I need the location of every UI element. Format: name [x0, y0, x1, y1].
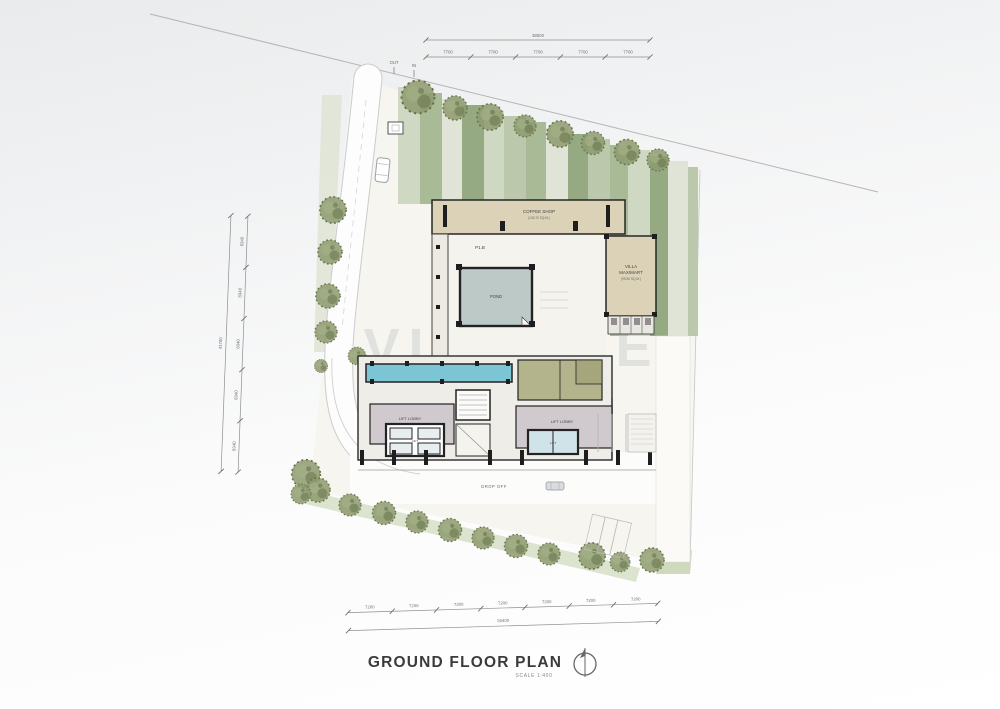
- dim-top-seg: 7700: [533, 50, 543, 55]
- lift-west-label: LIFT: [412, 439, 418, 443]
- tree-icon: [504, 534, 527, 557]
- column: [436, 275, 440, 279]
- tree-icon: [316, 284, 340, 308]
- column: [436, 305, 440, 309]
- column: [652, 234, 657, 239]
- dim-left-seg: 8340: [239, 236, 244, 246]
- door-mark: [573, 221, 578, 231]
- tree-icon: [538, 543, 560, 565]
- dimension-bottom: 7200 7200 7200 7200 7200 7200 7200 50400: [345, 596, 661, 633]
- p1b-label: P1.B: [475, 245, 485, 250]
- dim-bottom-seg: 7200: [498, 600, 508, 605]
- dim-left-seg: 8340: [237, 287, 242, 297]
- toilet-block: [608, 316, 654, 334]
- dim-top-seg: 7700: [578, 50, 588, 55]
- entry-out-label: OUT: [390, 60, 399, 65]
- dim-left-seg: 8340: [231, 441, 236, 451]
- lift-lobby-east-label: LIFT LOBBY: [551, 419, 574, 424]
- tree-icon: [547, 121, 573, 147]
- tree-icon: [291, 484, 311, 504]
- tree-icon: [314, 359, 327, 372]
- dim-top-seg: 7700: [623, 50, 633, 55]
- tree-icon: [318, 240, 342, 264]
- amenity-room-small: [576, 360, 602, 384]
- dim-top-seg: 7700: [443, 50, 453, 55]
- column: [529, 321, 535, 327]
- tree-icon: [477, 104, 503, 130]
- title-block: GROUND FLOOR PLAN SCALE 1:400: [368, 648, 596, 679]
- dim-bottom-seg: 7200: [454, 602, 464, 607]
- column: [529, 264, 535, 270]
- column: [604, 234, 609, 239]
- car-icon: [375, 157, 390, 182]
- column: [456, 264, 462, 270]
- guard-house: [388, 122, 403, 134]
- lower-building-block: LIFT LOBBY LIFT LIFT LOBBY LIFT: [358, 356, 656, 470]
- column: [456, 321, 462, 327]
- tree-icon: [406, 511, 428, 533]
- north-arrow-icon: [574, 648, 596, 677]
- dim-bottom-total: 50400: [497, 618, 510, 623]
- site-plan-drawing: VILORTE OUT IN COFFEE SHOP (136.70 SQ.M.…: [0, 0, 1000, 709]
- dim-left-total: 41700: [218, 337, 223, 350]
- villa-area-label: (95.50 SQ.M.): [621, 277, 641, 281]
- coffee-shop-label: COFFEE SHOP: [523, 209, 555, 214]
- lift-lobby-west-label: LIFT LOBBY: [399, 416, 422, 421]
- entry-arrows: [394, 67, 414, 77]
- car-icon-dropoff: [546, 482, 564, 490]
- tree-icon: [372, 501, 395, 524]
- lap-pool: [366, 364, 512, 382]
- dim-left-seg: 8340: [235, 338, 240, 348]
- villa-maximart-room: [606, 236, 656, 316]
- villa-label-1: VILLA: [625, 264, 637, 269]
- wall-segment: [443, 205, 447, 227]
- column: [436, 245, 440, 249]
- pond-label: POND: [490, 294, 502, 299]
- tree-icon: [647, 149, 669, 171]
- tree-icon: [640, 548, 664, 572]
- wall-segment: [606, 205, 610, 227]
- lift-bank-east: LIFT: [528, 430, 578, 454]
- tree-icon: [581, 131, 604, 154]
- tree-icon: [339, 494, 361, 516]
- dim-bottom-seg: 7200: [542, 599, 552, 604]
- column: [436, 335, 440, 339]
- dim-top-total: 38500: [532, 33, 545, 38]
- dim-top-seg: 7700: [488, 50, 498, 55]
- dim-bottom-seg: 7200: [365, 604, 375, 609]
- floor-plan-page: VILORTE OUT IN COFFEE SHOP (136.70 SQ.M.…: [0, 0, 1000, 709]
- tree-icon: [320, 197, 346, 223]
- coffee-shop-area-label: (136.70 SQ.M.): [528, 216, 550, 220]
- drop-off-label: DROP OFF: [481, 484, 507, 489]
- entry-in-label: IN: [412, 63, 416, 68]
- dim-bottom-seg: 7200: [631, 596, 641, 601]
- tree-icon: [610, 552, 630, 572]
- tree-icon: [472, 527, 494, 549]
- tree-icon: [614, 139, 639, 164]
- door-mark: [500, 221, 505, 231]
- tree-icon: [315, 321, 337, 343]
- tree-icon: [579, 543, 605, 569]
- tree-icon: [443, 96, 467, 120]
- page-title: GROUND FLOOR PLAN: [368, 654, 562, 671]
- upper-building-block: COFFEE SHOP (136.70 SQ.M.) VILLA MAXIMAR…: [432, 200, 657, 356]
- east-parking-aisle: [656, 336, 690, 562]
- villa-label-2: MAXIMART: [619, 270, 643, 275]
- dim-left-seg: 8340: [233, 390, 238, 400]
- tree-icon: [438, 518, 461, 541]
- tree-icon: [514, 115, 536, 137]
- dimension-top: 38500 7700 7700 7700 7700 7700: [423, 33, 652, 60]
- dimension-left: 41700 8340 8340 8340 8340 8340: [213, 213, 251, 475]
- lift-east-label: LIFT: [550, 441, 556, 445]
- dim-bottom-seg: 7200: [586, 598, 596, 603]
- tree-icon: [402, 81, 435, 114]
- dim-bottom-seg: 7200: [409, 603, 419, 608]
- scale-label: SCALE 1:400: [516, 673, 553, 679]
